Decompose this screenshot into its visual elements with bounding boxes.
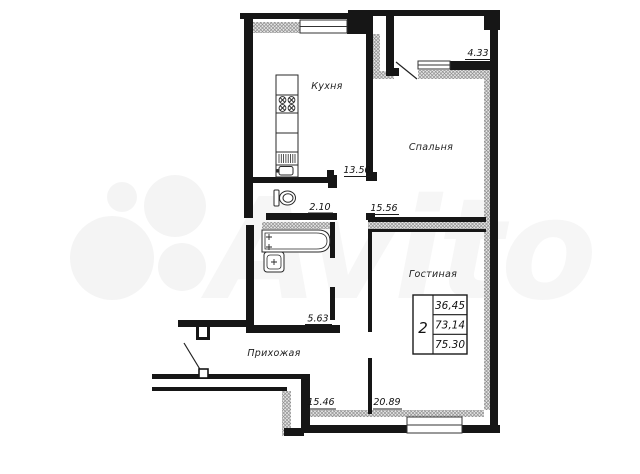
watermark-circle <box>158 243 206 291</box>
area-label-living-room: 20.89 <box>373 397 400 408</box>
room-label-bedroom: Спальня <box>409 142 453 153</box>
info-stamp: 2 36,45 73,14 75.30 <box>413 295 467 354</box>
area-label-wc: 2.10 <box>309 202 330 213</box>
room-label-kitchen: Кухня <box>311 81 342 92</box>
area-label-hallway: 15.46 <box>307 397 334 408</box>
entry-door-swing <box>184 343 201 371</box>
watermark-circle <box>70 216 154 300</box>
washbasin-icon <box>264 252 284 272</box>
watermark-circle <box>107 182 137 212</box>
balcony-window <box>418 61 450 69</box>
kitchen-window <box>300 20 347 33</box>
watermark-text: Avito <box>200 169 593 332</box>
floorplan-page: Avito <box>0 0 640 474</box>
entry-door-jamb <box>199 369 208 378</box>
stamp-rooms-count: 2 <box>418 319 428 337</box>
stamp-living-area: 36,45 <box>435 300 465 312</box>
balcony-door-swing <box>396 62 417 79</box>
watermark-circle <box>144 175 206 237</box>
room-label-living-room: Гостиная <box>409 269 457 280</box>
area-label-bathroom: 5.63 <box>307 314 328 325</box>
area-label-balcony: 4.33 <box>467 48 488 59</box>
living-room-window <box>407 417 462 433</box>
area-label-bedroom: 15.56 <box>370 203 397 214</box>
stamp-area-with-balcony: 75.30 <box>435 339 465 351</box>
toilet-icon <box>274 190 296 206</box>
floorplan-drawing: Avito <box>0 0 640 474</box>
bathtub-icon <box>262 230 330 252</box>
area-label-kitchen: 13.50 <box>343 165 370 176</box>
stamp-total-area: 73,14 <box>435 320 465 332</box>
room-label-hallway: Прихожая <box>247 348 300 359</box>
